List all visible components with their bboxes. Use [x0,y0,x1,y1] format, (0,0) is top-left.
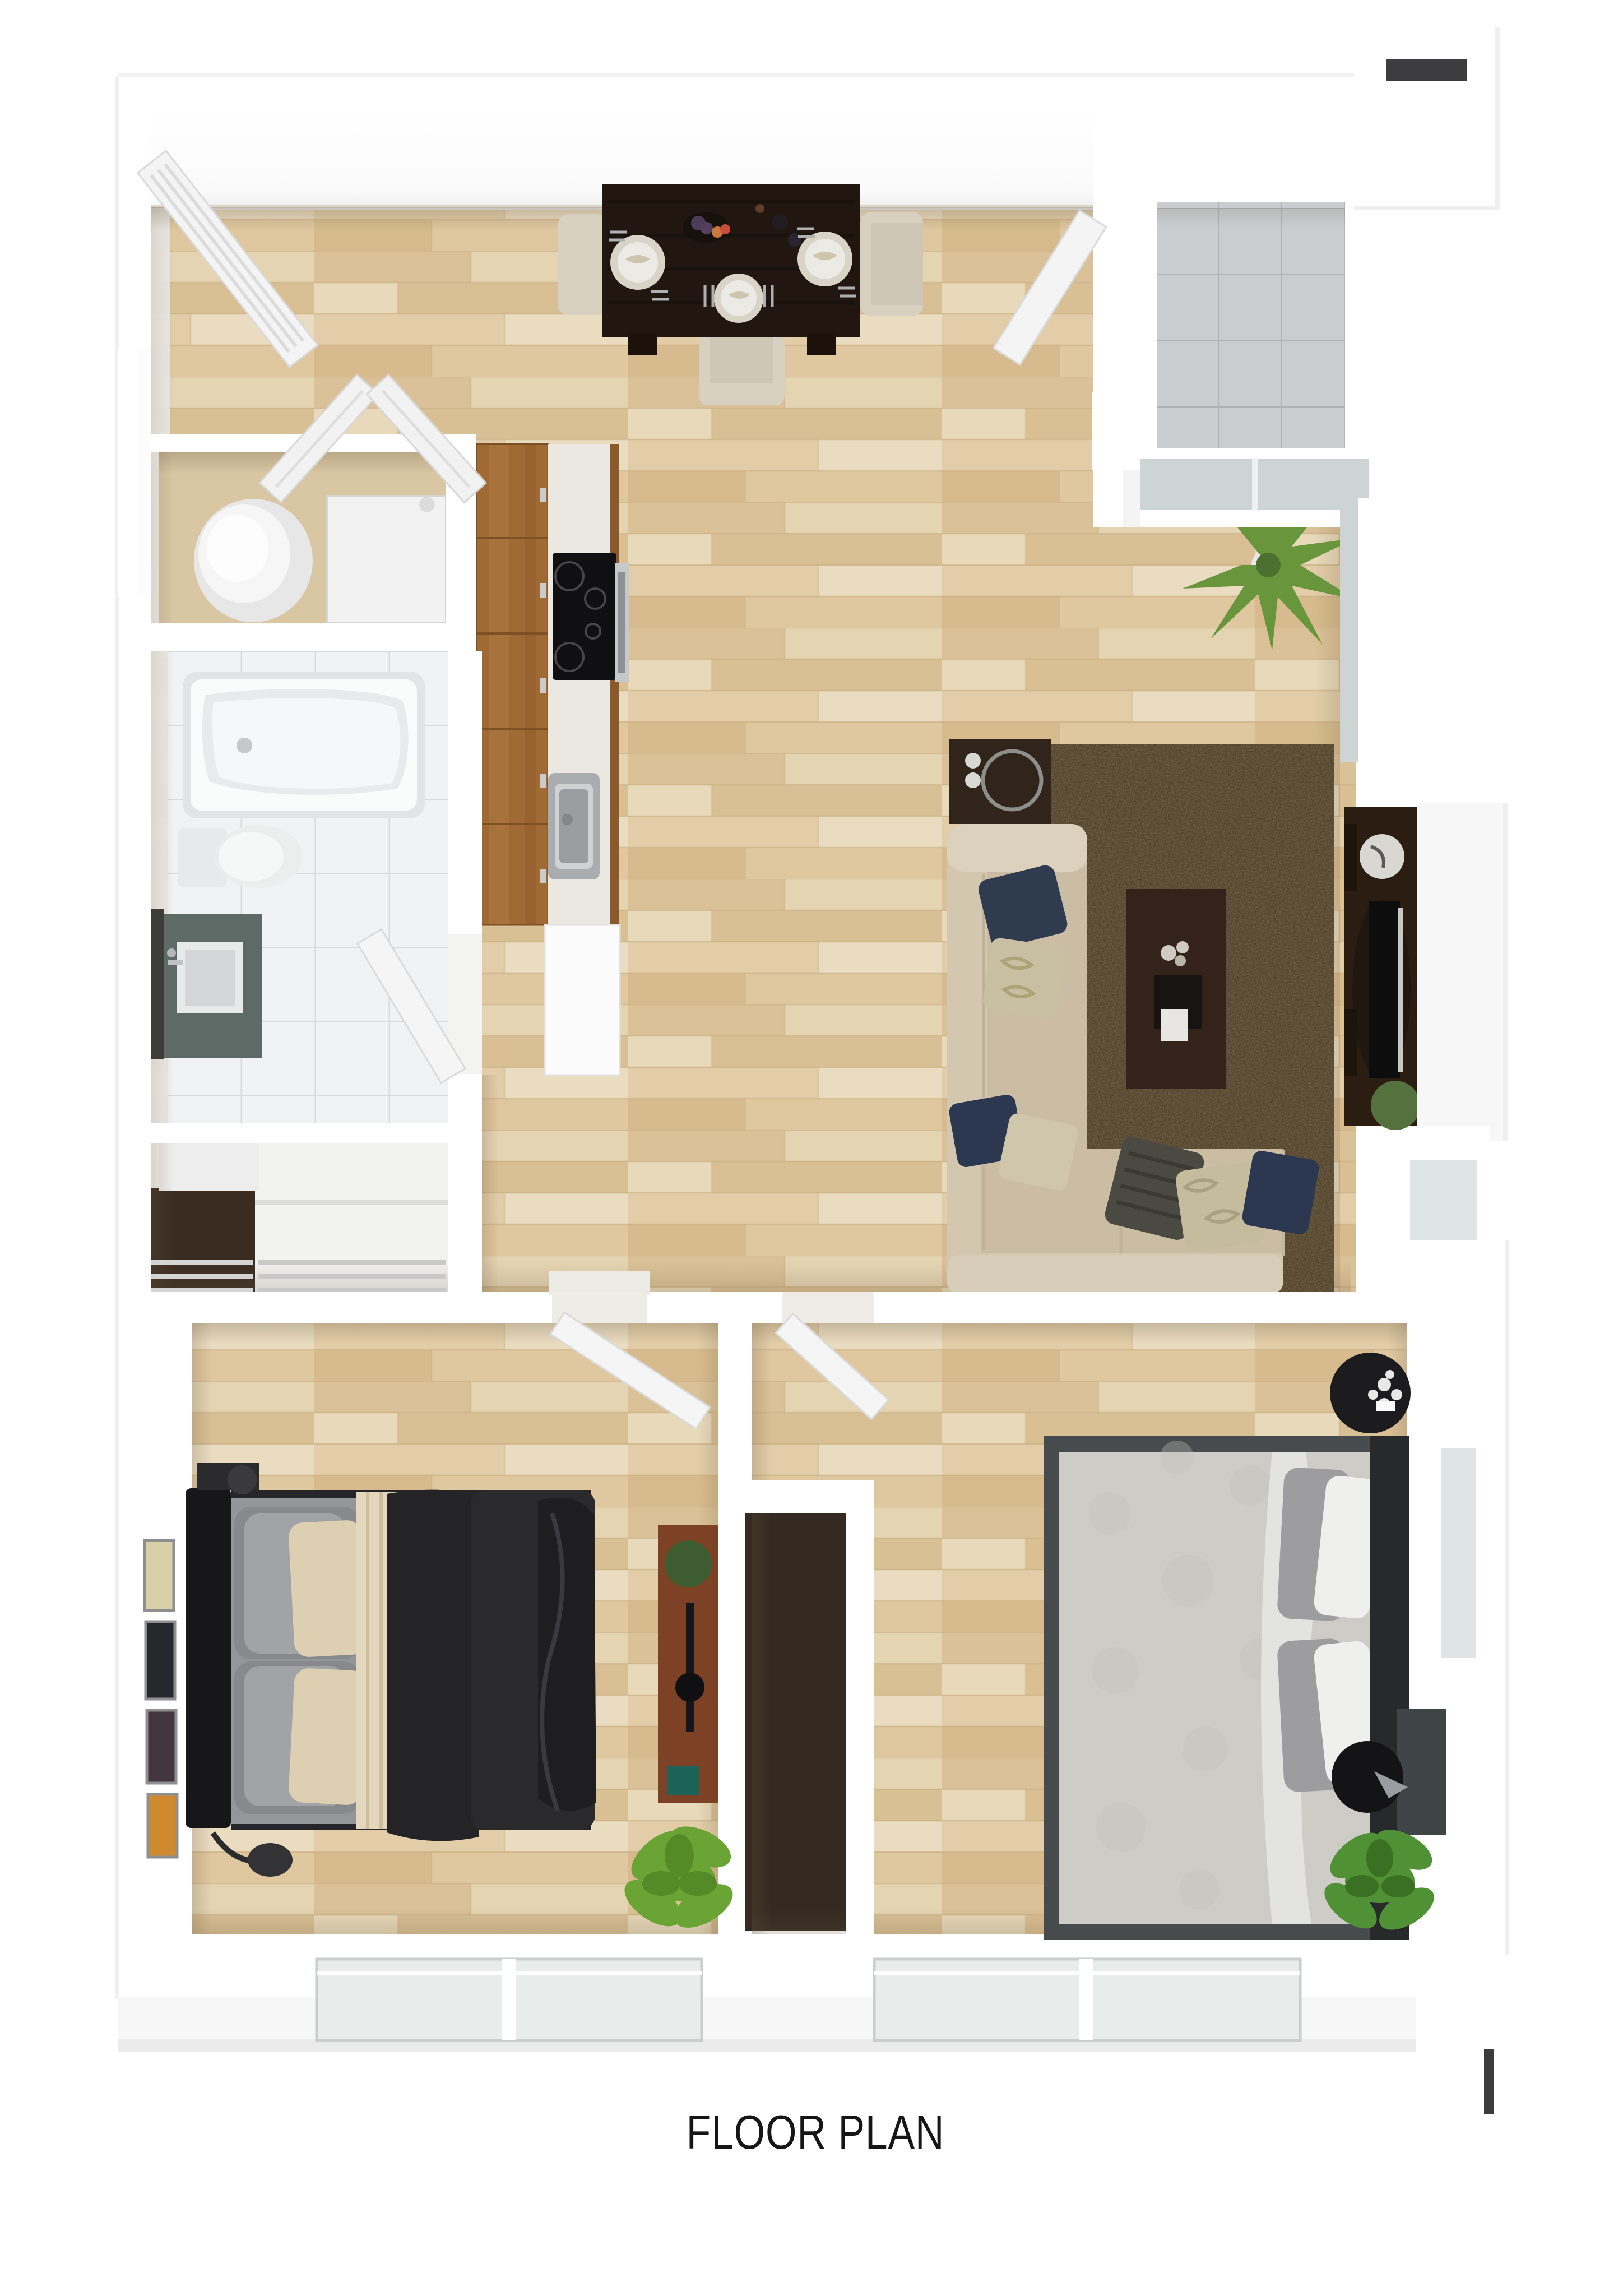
svg-text:FLOOR PLAN: FLOOR PLAN [687,2105,945,2159]
